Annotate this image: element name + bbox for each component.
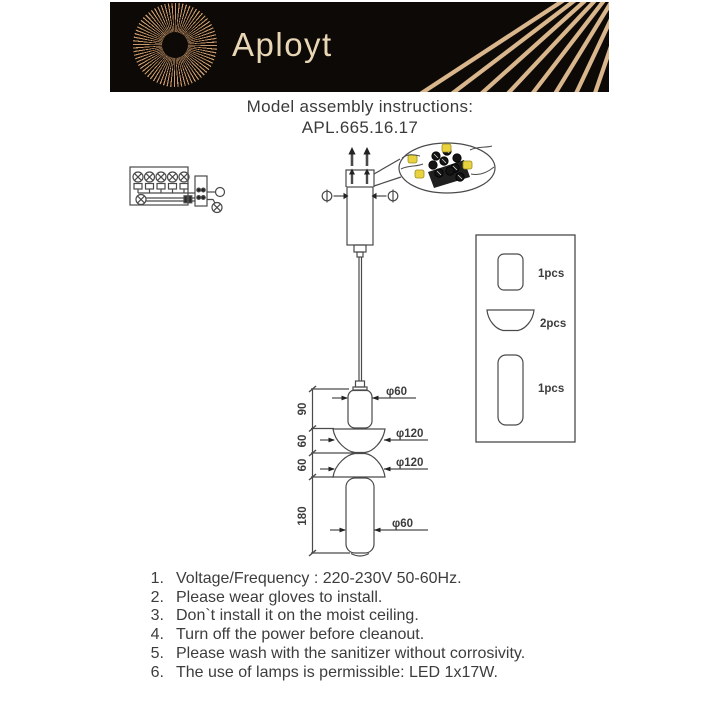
dim-label-60b: 60 xyxy=(297,459,309,472)
instruction-text: The use of lamps is permissible: LED 1x1… xyxy=(176,664,498,683)
dim-label-60a: 60 xyxy=(297,435,309,448)
dimension-lines xyxy=(309,386,428,556)
instruction-number: 4. xyxy=(146,626,164,645)
brand-banner: Aployt xyxy=(110,2,609,92)
instruction-text: Please wash with the sanitizer without c… xyxy=(176,645,525,664)
part-small-cylinder xyxy=(498,254,523,290)
dia-label-top: φ60 xyxy=(386,386,407,398)
instruction-item: 4. Turn off the power before cleanout. xyxy=(146,626,525,645)
instruction-text: Voltage/Frequency : 220-230V 50-60Hz. xyxy=(176,570,462,589)
parts-count-2: 2pcs xyxy=(540,318,566,330)
parts-count-3: 1pcs xyxy=(538,383,564,395)
instructions-list: 1. Voltage/Frequency : 220-230V 50-60Hz.… xyxy=(146,570,525,682)
detail-callout xyxy=(374,143,495,193)
instruction-item: 6. The use of lamps is permissible: LED … xyxy=(146,664,525,683)
instruction-item: 2. Please wear gloves to install. xyxy=(146,589,525,608)
instruction-number: 2. xyxy=(146,589,164,608)
instruction-text: Please wear gloves to install. xyxy=(176,589,382,608)
parts-count-1: 1pcs xyxy=(538,268,564,280)
assembly-diagram: 90 60 60 180 φ60 φ120 φ120 φ60 1pcs 2pcs… xyxy=(100,140,620,570)
dia-label-upper-bowl: φ120 xyxy=(396,428,423,440)
instruction-item: 3. Don`t install it on the moist ceiling… xyxy=(146,607,525,626)
instruction-number: 1. xyxy=(146,570,164,589)
dim-label-90: 90 xyxy=(297,403,309,416)
instruction-item: 5. Please wash with the sanitizer withou… xyxy=(146,645,525,664)
wiring-diagram xyxy=(130,167,225,213)
instruction-number: 3. xyxy=(146,607,164,626)
side-screw-left-icon xyxy=(322,190,348,203)
dia-label-lower-bowl: φ120 xyxy=(396,457,423,469)
instruction-number: 6. xyxy=(146,664,164,683)
dim-label-180: 180 xyxy=(297,506,309,525)
parts-box xyxy=(476,235,575,442)
instruction-text: Don`t install it on the moist ceiling. xyxy=(176,607,419,626)
banner-rays-decoration-icon xyxy=(110,2,609,92)
part-bowl xyxy=(487,310,534,331)
page-title: Model assembly instructions: APL.665.16.… xyxy=(0,96,720,138)
instruction-text: Turn off the power before cleanout. xyxy=(176,626,424,645)
model-number: APL.665.16.17 xyxy=(0,117,720,138)
side-screw-right-icon xyxy=(372,190,398,203)
title-line1: Model assembly instructions: xyxy=(0,96,720,117)
instruction-item: 1. Voltage/Frequency : 220-230V 50-60Hz. xyxy=(146,570,525,589)
instruction-number: 5. xyxy=(146,645,164,664)
dia-label-bottom: φ60 xyxy=(392,518,413,530)
canopy-assembly xyxy=(322,147,398,391)
part-long-cylinder xyxy=(498,355,523,425)
